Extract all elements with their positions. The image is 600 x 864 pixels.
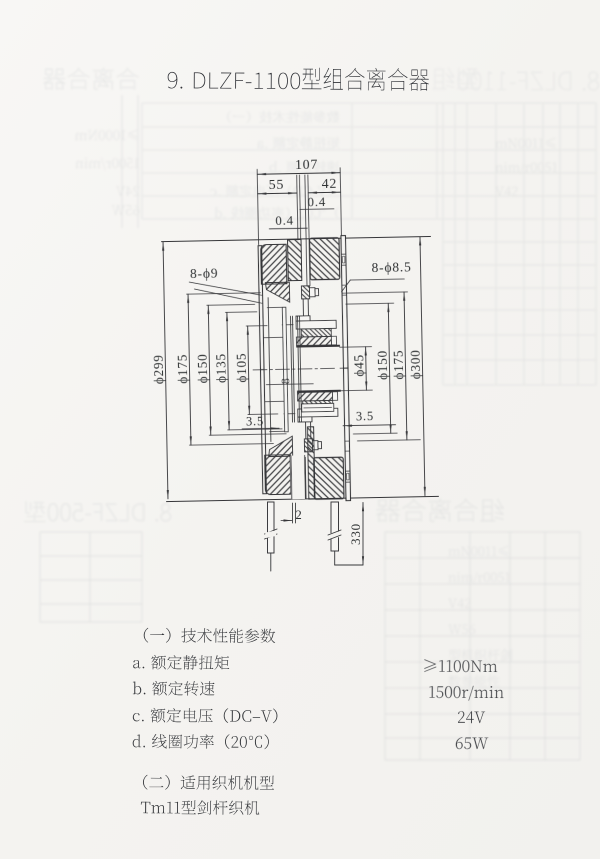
svg-text:0.4: 0.4	[275, 214, 294, 228]
svg-text:8-ϕ9: 8-ϕ9	[190, 266, 219, 282]
svg-text:8: 8	[278, 377, 292, 384]
svg-text:2: 2	[295, 508, 302, 522]
svg-text:ϕ135: ϕ135	[213, 353, 229, 383]
svg-text:55: 55	[269, 177, 285, 192]
svg-text:107: 107	[295, 157, 318, 172]
svg-text:3.5: 3.5	[356, 409, 374, 423]
svg-text:ϕ175: ϕ175	[391, 349, 407, 379]
svg-text:ϕ150: ϕ150	[195, 353, 211, 383]
svg-text:0.4: 0.4	[307, 195, 326, 209]
svg-text:ϕ45: ϕ45	[351, 354, 366, 377]
svg-text:ϕ175: ϕ175	[175, 354, 191, 384]
svg-text:3.5: 3.5	[246, 414, 264, 428]
svg-text:330: 330	[348, 523, 363, 545]
svg-text:42: 42	[322, 176, 338, 191]
svg-text:8-ϕ8.5: 8-ϕ8.5	[371, 259, 411, 275]
svg-text:ϕ105: ϕ105	[234, 353, 250, 383]
svg-text:ϕ150: ϕ150	[375, 350, 391, 380]
svg-text:ϕ299: ϕ299	[151, 354, 167, 384]
svg-text:ϕ300: ϕ300	[408, 349, 424, 379]
